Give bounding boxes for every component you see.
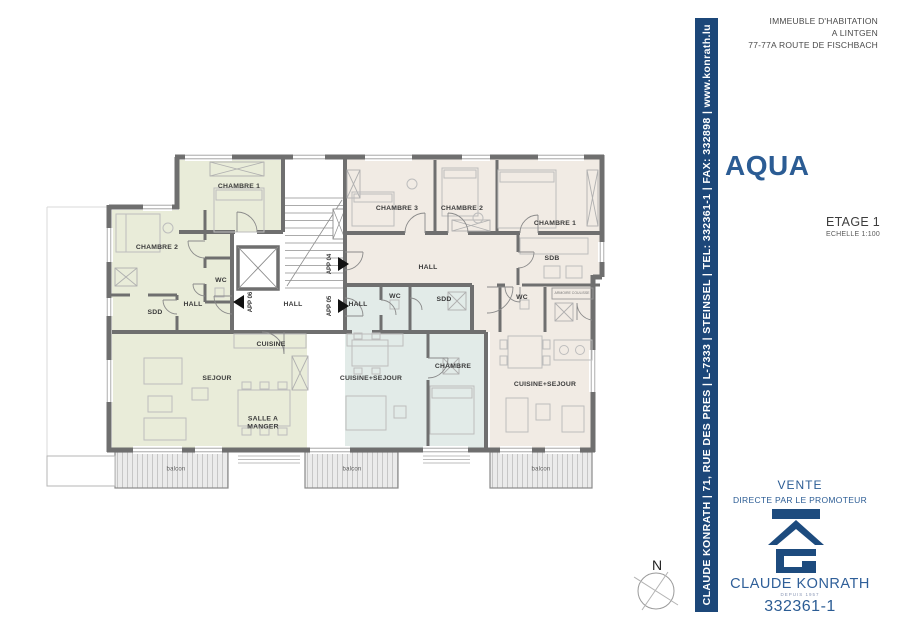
floor-plan-sheet: APP 06 APP 04 APP 05 N CHAMBRE 1 CHAMBRE… bbox=[0, 0, 900, 636]
room-label-chambre1-app06: CHAMBRE 1 bbox=[218, 183, 260, 191]
company-name: CLAUDE KONRATH bbox=[708, 576, 892, 592]
claude-konrath-logo bbox=[768, 509, 824, 573]
room-label-chambre2-app04: CHAMBRE 2 bbox=[441, 205, 483, 213]
room-label-armoire-app04: ARMOIRE COULISSE bbox=[554, 291, 589, 295]
address-line-2: A LINTGEN bbox=[748, 28, 878, 40]
balconies bbox=[47, 452, 592, 488]
property-line bbox=[47, 207, 109, 456]
balcony-extension bbox=[47, 456, 115, 486]
app-04-door-label: APP 04 bbox=[327, 253, 333, 274]
scale-label: ECHELLE 1:100 bbox=[826, 231, 880, 238]
building-address: IMMEUBLE D'HABITATION A LINTGEN 77-77A R… bbox=[748, 16, 878, 52]
contact-banner-text: CLAUDE KONRATH | 71, RUE DES PRES | L-73… bbox=[701, 24, 713, 605]
room-label-sdd-app06: SDD bbox=[148, 309, 163, 317]
address-line-1: IMMEUBLE D'HABITATION bbox=[748, 16, 878, 28]
compass-north-label: N bbox=[652, 557, 662, 573]
elevator bbox=[238, 247, 278, 289]
floor-plan-drawing: APP 06 APP 04 APP 05 N bbox=[0, 0, 900, 636]
room-label-wc-app05: WC bbox=[389, 293, 401, 301]
app-05-door-label: APP 05 bbox=[327, 295, 333, 316]
room-label-chambre1-app04: CHAMBRE 1 bbox=[534, 220, 576, 228]
room-label-sdb-app04: SDB bbox=[545, 255, 560, 263]
room-label-hall-app04: HALL bbox=[419, 264, 438, 272]
company-since: DEPUIS 1957 bbox=[708, 592, 892, 597]
floor-label: ETAGE 1 bbox=[826, 215, 880, 229]
room-label-hall-core: HALL bbox=[284, 301, 303, 309]
room-label-salle-a-manger-app06: SALLE A MANGER bbox=[240, 416, 286, 433]
app-06-door-label: APP 06 bbox=[248, 291, 254, 312]
room-label-cuisine-sejour-app05: CUISINE+SEJOUR bbox=[340, 375, 402, 383]
room-label-sejour-app06: SEJOUR bbox=[202, 375, 231, 383]
room-label-balcon-app06: balcon bbox=[167, 466, 186, 474]
sale-title: VENTE bbox=[712, 478, 888, 492]
room-label-chambre2-app06: CHAMBRE 2 bbox=[136, 244, 178, 252]
project-title: AQUA bbox=[725, 150, 809, 182]
sale-subtitle: DIRECTE PAR LE PROMOTEUR bbox=[712, 495, 888, 505]
address-line-3: 77-77A ROUTE DE FISCHBACH bbox=[748, 40, 878, 52]
room-label-wc-app06: WC bbox=[215, 277, 227, 285]
room-label-chambre3-app04: CHAMBRE 3 bbox=[376, 205, 418, 213]
room-label-hall-app06: HALL bbox=[184, 301, 203, 309]
room-label-sdd-app05: SDD bbox=[437, 296, 452, 304]
sale-info: VENTE DIRECTE PAR LE PROMOTEUR bbox=[712, 478, 888, 505]
room-label-wc-app04: WC bbox=[516, 294, 528, 302]
room-label-cuisine-app06: CUISINE bbox=[257, 341, 286, 349]
room-label-chambre-app05: CHAMBRE bbox=[435, 363, 471, 371]
room-label-balcon-app04: balcon bbox=[532, 466, 551, 474]
contact-banner: CLAUDE KONRATH | 71, RUE DES PRES | L-73… bbox=[695, 18, 718, 612]
room-label-hall-app05: HALL bbox=[349, 301, 368, 309]
room-label-cuisine-sejour-app04: CUISINE+SEJOUR bbox=[514, 381, 576, 389]
floor-info: ETAGE 1 ECHELLE 1:100 bbox=[826, 215, 880, 238]
compass: N bbox=[634, 557, 678, 610]
room-label-balcon-app05: balcon bbox=[343, 466, 362, 474]
reference-number: 332361-1 bbox=[708, 598, 892, 616]
